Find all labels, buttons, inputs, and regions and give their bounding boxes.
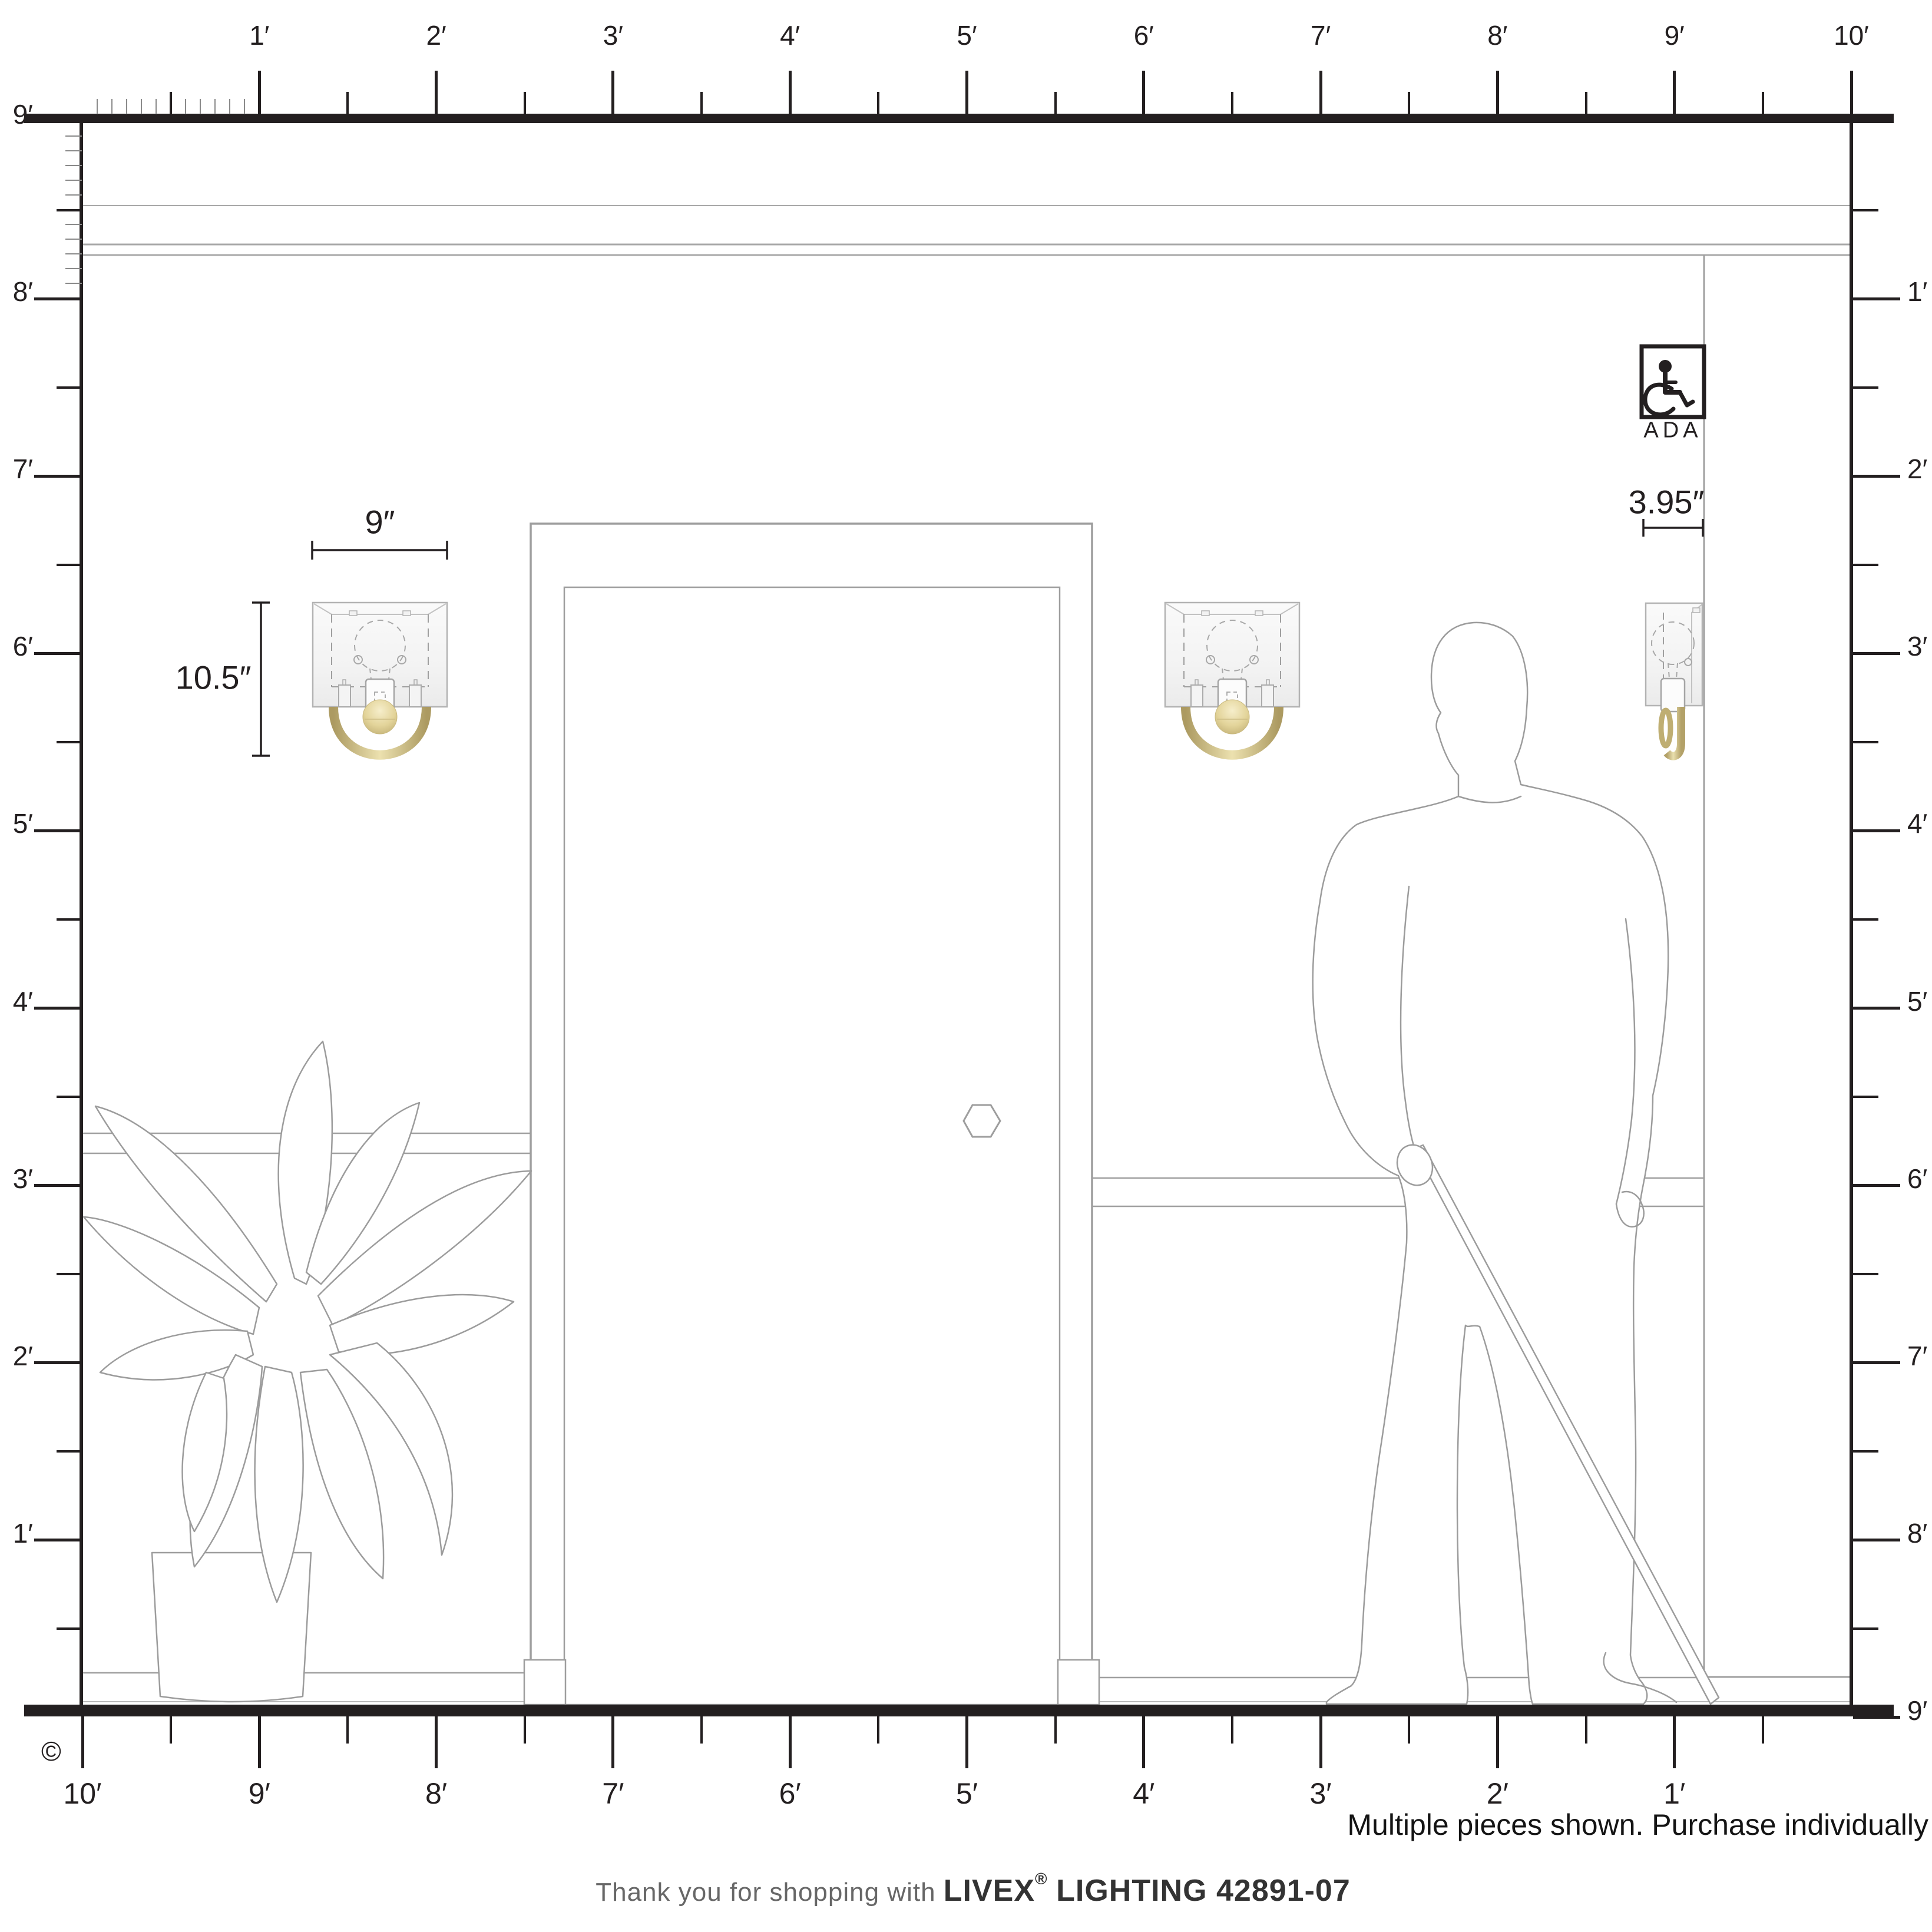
width-dimension-label: 9″ xyxy=(365,503,395,541)
ruler-left-inch-tick xyxy=(65,150,82,151)
ruler-top-half-tick xyxy=(1054,92,1057,114)
ruler-top-inch-tick xyxy=(214,99,216,114)
ruler-right-foot-tick xyxy=(1853,1539,1900,1541)
ruler-top-inch-tick xyxy=(229,99,230,114)
footer-prefix: Thank you for shopping with xyxy=(596,1878,944,1907)
ruler-bottom-foot-tick xyxy=(965,1716,968,1768)
width-dimension-line xyxy=(312,541,447,560)
door xyxy=(524,524,1099,1705)
ruler-right-label: 6′ xyxy=(1907,1163,1927,1195)
ruler-top-inch-tick xyxy=(156,99,157,114)
ruler-bottom-label: 6′ xyxy=(779,1776,801,1811)
depth-dimension-line xyxy=(1643,519,1703,537)
ruler-bottom-foot-tick xyxy=(1142,1716,1145,1768)
potted-plant xyxy=(84,1041,531,1702)
ruler-left-label: 5′ xyxy=(13,808,33,839)
ruler-left-half-tick xyxy=(57,1096,82,1098)
ruler-bottom-label: 4′ xyxy=(1133,1776,1154,1811)
ruler-top-inch-tick xyxy=(111,99,113,114)
ruler-right-foot-tick xyxy=(1853,829,1900,832)
ruler-bottom-half-tick xyxy=(1762,1716,1764,1744)
ruler-top-foot-tick xyxy=(435,71,438,114)
registered-mark: ® xyxy=(1035,1870,1047,1888)
ruler-top-foot-tick xyxy=(611,71,614,114)
ruler-bottom-foot-tick xyxy=(1673,1716,1676,1768)
ruler-bottom-label: 10′ xyxy=(64,1776,102,1811)
ruler-bottom-half-tick xyxy=(700,1716,703,1744)
ruler-bottom-label: 2′ xyxy=(1487,1776,1508,1811)
ruler-right-half-tick xyxy=(1853,209,1878,211)
ruler-bottom-label: 9′ xyxy=(249,1776,270,1811)
ruler-top-half-tick xyxy=(877,92,879,114)
ruler-right-label: 2′ xyxy=(1907,453,1927,485)
ruler-left-half-tick xyxy=(57,209,82,211)
ruler-top-label: 5′ xyxy=(957,19,977,51)
ruler-top-inch-tick xyxy=(244,99,245,114)
ruler-bottom-foot-tick xyxy=(81,1716,84,1768)
ruler-bottom-half-tick xyxy=(1585,1716,1587,1744)
purchase-note: Multiple pieces shown. Purchase individu… xyxy=(1347,1808,1928,1842)
ruler-right-half-tick xyxy=(1853,1450,1878,1453)
ruler-bottom-half-tick xyxy=(1054,1716,1057,1744)
ruler-top-label: 10′ xyxy=(1834,19,1869,51)
ruler-left-label: 8′ xyxy=(13,276,33,307)
ruler-left-inch-tick xyxy=(65,253,82,254)
ruler-right-half-tick xyxy=(1853,918,1878,921)
product-number: LIGHTING 42891-07 xyxy=(1047,1874,1351,1908)
ruler-top-inch-tick xyxy=(126,99,127,114)
ruler-left-inch-tick xyxy=(65,180,82,181)
ruler-left-inch-tick xyxy=(65,239,82,240)
ruler-bottom-foot-tick xyxy=(1319,1716,1322,1768)
ruler-left-label: 1′ xyxy=(13,1517,33,1549)
ruler-right-foot-tick xyxy=(1853,475,1900,478)
ruler-bottom-half-tick xyxy=(524,1716,526,1744)
ruler-right-foot-tick xyxy=(1853,1361,1900,1364)
ada-label: ADA xyxy=(1643,418,1702,444)
ruler-top-inch-tick xyxy=(141,99,142,114)
ruler-top-half-tick xyxy=(1408,92,1410,114)
ruler-bottom-label: 8′ xyxy=(425,1776,447,1811)
door-plinth-right xyxy=(1058,1660,1099,1705)
ruler-top-foot-tick xyxy=(789,71,792,114)
ruler-left-line xyxy=(80,114,83,1716)
ruler-bottom-foot-tick xyxy=(1496,1716,1499,1768)
ruler-top-half-tick xyxy=(524,92,526,114)
ruler-left-foot-tick xyxy=(34,1539,81,1541)
ruler-bottom-label: 1′ xyxy=(1663,1776,1685,1811)
ruler-top-label: 6′ xyxy=(1134,19,1154,51)
ruler-top-half-tick xyxy=(1585,92,1587,114)
ruler-top-inch-tick xyxy=(185,99,186,114)
ruler-right-label: 1′ xyxy=(1907,276,1927,307)
product-dimension-diagram: 1′2′3′4′5′6′7′8′9′10′9′8′7′6′5′4′3′2′1′1… xyxy=(0,0,1932,1932)
ruler-left-half-tick xyxy=(57,386,82,389)
ruler-top-label: 4′ xyxy=(780,19,800,51)
ruler-top-half-tick xyxy=(346,92,349,114)
sconce-middle xyxy=(1165,603,1299,755)
ruler-top-foot-tick xyxy=(1319,71,1322,114)
ruler-bottom-foot-tick xyxy=(258,1716,261,1768)
wall-corner-line xyxy=(1704,255,1850,1677)
ruler-right-foot-tick xyxy=(1853,1184,1900,1187)
ruler-top-label: 3′ xyxy=(603,19,623,51)
ruler-left-half-tick xyxy=(57,1627,82,1630)
ruler-left-foot-tick xyxy=(34,475,81,478)
sconce-right-side-view xyxy=(1646,603,1702,756)
ruler-left-foot-tick xyxy=(34,1007,81,1010)
ruler-right-foot-tick xyxy=(1853,1007,1900,1010)
ruler-right-half-tick xyxy=(1853,1627,1878,1630)
ruler-right-half-tick xyxy=(1853,1096,1878,1098)
ruler-right-label: 7′ xyxy=(1907,1340,1927,1372)
ruler-top-label: 9′ xyxy=(1665,19,1685,51)
ruler-left-inch-tick xyxy=(65,224,82,225)
ruler-top-foot-tick xyxy=(965,71,968,114)
ruler-top-label: 7′ xyxy=(1311,19,1331,51)
ruler-left-inch-tick xyxy=(65,165,82,166)
ruler-left-inch-tick xyxy=(65,268,82,269)
ruler-left-label: 7′ xyxy=(13,453,33,485)
ruler-bottom-half-tick xyxy=(346,1716,349,1744)
ruler-top-foot-tick xyxy=(1496,71,1499,114)
ruler-right-half-tick xyxy=(1853,1273,1878,1275)
ruler-bottom-foot-tick xyxy=(611,1716,614,1768)
ruler-left-inch-tick xyxy=(65,194,82,196)
ruler-top-inch-tick xyxy=(97,99,98,114)
ruler-left-label: 2′ xyxy=(13,1340,33,1372)
ruler-bottom-label: 7′ xyxy=(602,1776,624,1811)
ruler-bottom-bar xyxy=(24,1705,1894,1716)
sconce-left xyxy=(313,603,447,755)
depth-dimension-label: 3.95″ xyxy=(1629,483,1705,521)
brand-name: LIVEX xyxy=(944,1874,1035,1908)
wall-elevation-drawing xyxy=(0,0,1932,1932)
ruler-right-half-tick xyxy=(1853,741,1878,743)
ruler-bottom-foot-tick xyxy=(789,1716,792,1768)
footer-brand-line: Thank you for shopping with LIVEX® LIGHT… xyxy=(596,1870,1351,1908)
ruler-top-label: 2′ xyxy=(426,19,446,51)
ruler-top-foot-tick xyxy=(1673,71,1676,114)
ruler-right-label: 8′ xyxy=(1907,1517,1927,1549)
ruler-top-label: 8′ xyxy=(1487,19,1507,51)
ruler-bottom-label: 5′ xyxy=(956,1776,978,1811)
ruler-left-label: 6′ xyxy=(13,630,33,662)
ruler-top-foot-tick xyxy=(1142,71,1145,114)
ruler-left-inch-tick xyxy=(65,283,82,284)
ruler-right-foot-tick xyxy=(1853,1716,1900,1719)
ruler-left-half-tick xyxy=(57,564,82,566)
ruler-bottom-label: 3′ xyxy=(1310,1776,1332,1811)
ruler-left-label: 4′ xyxy=(13,985,33,1017)
ruler-bottom-foot-tick xyxy=(435,1716,438,1768)
ruler-top-half-tick xyxy=(170,92,172,114)
ruler-bottom-half-tick xyxy=(1408,1716,1410,1744)
height-dimension-label: 10.5″ xyxy=(176,659,252,697)
ada-badge xyxy=(1642,346,1704,417)
ruler-right-half-tick xyxy=(1853,386,1878,389)
door-plinth-left xyxy=(524,1660,565,1705)
ruler-top-bar xyxy=(24,114,1894,123)
ruler-right-foot-tick xyxy=(1853,297,1900,300)
ruler-right-half-tick xyxy=(1853,564,1878,566)
ruler-left-half-tick xyxy=(57,1450,82,1453)
ruler-top-half-tick xyxy=(700,92,703,114)
crown-molding xyxy=(83,206,1850,255)
ruler-left-foot-tick xyxy=(34,1184,81,1187)
ruler-bottom-half-tick xyxy=(877,1716,879,1744)
ruler-left-half-tick xyxy=(57,1273,82,1275)
ruler-right-line xyxy=(1850,114,1853,1716)
ruler-left-half-tick xyxy=(57,741,82,743)
ruler-top-inch-tick xyxy=(200,99,201,114)
ruler-top-label: 1′ xyxy=(249,19,269,51)
ruler-right-label: 3′ xyxy=(1907,630,1927,662)
ruler-left-label: 9′ xyxy=(13,98,33,130)
copyright-symbol: © xyxy=(41,1735,61,1767)
ruler-bottom-half-tick xyxy=(1231,1716,1233,1744)
ruler-top-foot-tick xyxy=(258,71,261,114)
ruler-top-half-tick xyxy=(1231,92,1233,114)
person-silhouette xyxy=(1313,623,1719,1704)
ruler-top-foot-tick xyxy=(1850,71,1853,114)
ruler-right-label: 4′ xyxy=(1907,808,1927,839)
height-dimension-line xyxy=(252,603,270,756)
ruler-right-label: 9′ xyxy=(1907,1695,1927,1726)
ruler-right-label: 5′ xyxy=(1907,985,1927,1017)
ruler-left-inch-tick xyxy=(65,135,82,137)
ruler-right-foot-tick xyxy=(1853,652,1900,655)
ruler-left-foot-tick xyxy=(34,1361,81,1364)
ruler-top-half-tick xyxy=(1762,92,1764,114)
ruler-left-foot-tick xyxy=(34,652,81,655)
ruler-left-label: 3′ xyxy=(13,1163,33,1195)
ruler-bottom-half-tick xyxy=(170,1716,172,1744)
ruler-left-foot-tick xyxy=(34,297,81,300)
ruler-left-half-tick xyxy=(57,918,82,921)
ruler-left-foot-tick xyxy=(34,829,81,832)
